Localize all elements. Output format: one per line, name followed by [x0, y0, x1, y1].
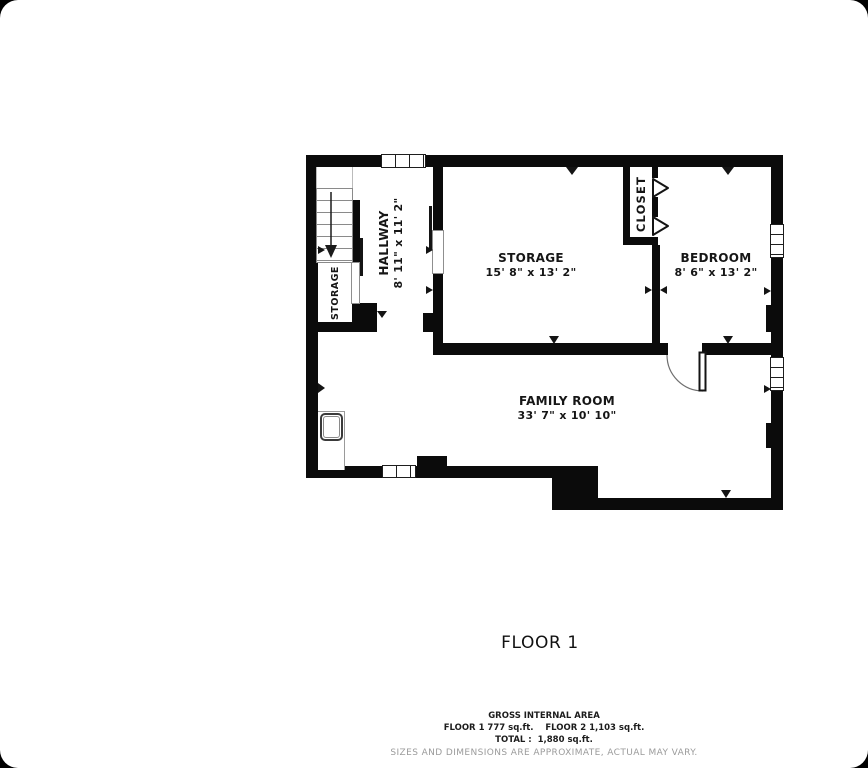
window-family-room: [770, 357, 784, 391]
bedroom-door-opening: [668, 343, 702, 355]
wall-bottom-right: [552, 498, 783, 510]
staircase: [316, 188, 353, 263]
closet-door-opening-2: [651, 217, 659, 237]
closet-label-group: CLOSET: [633, 164, 649, 244]
tick-top-bedroom: [722, 167, 734, 175]
hallway-label: HALLWAY: [377, 210, 392, 275]
wall-bottom-pier: [417, 456, 447, 468]
closet-label: CLOSET: [634, 176, 649, 232]
wall-rooms-bottom: [433, 343, 771, 355]
appliance: [320, 413, 343, 441]
tick-hallwall-lower: [426, 286, 433, 294]
wall-right-pier-family: [766, 423, 783, 448]
floor-title: FLOOR 1: [190, 633, 868, 653]
wall-chunk-right: [423, 313, 443, 332]
window-bottom: [382, 465, 416, 478]
hallway-dims: 8' 11" x 11' 2": [392, 197, 406, 288]
tick-storagewall-left: [645, 286, 652, 294]
stair-landing: [316, 167, 353, 188]
storage-dims: 15' 8" x 13' 2": [431, 266, 631, 280]
closet-door-opening-1: [651, 178, 659, 197]
tick-left-family: [318, 383, 325, 393]
bedroom-dims: 8' 6" x 13' 2": [616, 266, 816, 280]
understairs-storage-label: STORAGE: [328, 266, 343, 320]
storage-label: STORAGE: [431, 251, 631, 266]
bedroom-label-group: BEDROOM 8' 6" x 13' 2": [616, 251, 816, 280]
tick-rightwall-bedroom: [764, 287, 771, 295]
gross-internal-area-title: GROSS INTERNAL AREA: [194, 711, 868, 722]
window-top: [381, 154, 426, 168]
bedroom-door-leaf: [700, 353, 706, 391]
bedroom-door-swing-arc: [667, 355, 703, 391]
tick-storagewall-right: [660, 286, 667, 294]
tick-bottom-family: [721, 490, 731, 498]
family-room-label: FAMILY ROOM: [467, 394, 667, 409]
hallway-label-group: HALLWAY 8' 11" x 11' 2": [373, 178, 409, 308]
wall-top: [306, 155, 783, 167]
understairs-door-opening: [351, 262, 360, 304]
family-room-dims: 33' 7" x 10' 10": [467, 409, 667, 423]
disclaimer-text: SIZES AND DIMENSIONS ARE APPROXIMATE, AC…: [194, 748, 868, 759]
wall-closet-left: [623, 167, 630, 245]
family-room-label-group: FAMILY ROOM 33' 7" x 10' 10": [467, 394, 667, 423]
floorplan-page: HALLWAY 8' 11" x 11' 2" STORAGE 15' 8" x…: [0, 0, 868, 768]
wall-right-pier-bedroom: [766, 305, 783, 332]
wall-closet-right-mid: [652, 196, 658, 218]
total-area-text: TOTAL : 1,880 sq.ft.: [194, 735, 868, 746]
wall-right: [771, 155, 783, 510]
understairs-storage-label-group: STORAGE: [328, 258, 342, 328]
tick-top-storage: [566, 167, 578, 175]
bedroom-label: BEDROOM: [616, 251, 816, 266]
wall-stairs-right: [352, 200, 360, 263]
storage-label-group: STORAGE 15' 8" x 13' 2": [431, 251, 631, 280]
floor-areas-text: FLOOR 1 777 sq.ft. FLOOR 2 1,103 sq.ft.: [194, 723, 868, 734]
wall-step-block: [552, 466, 598, 502]
understairs-door-leaf: [360, 238, 363, 276]
tick-hallway-entry: [377, 311, 387, 318]
